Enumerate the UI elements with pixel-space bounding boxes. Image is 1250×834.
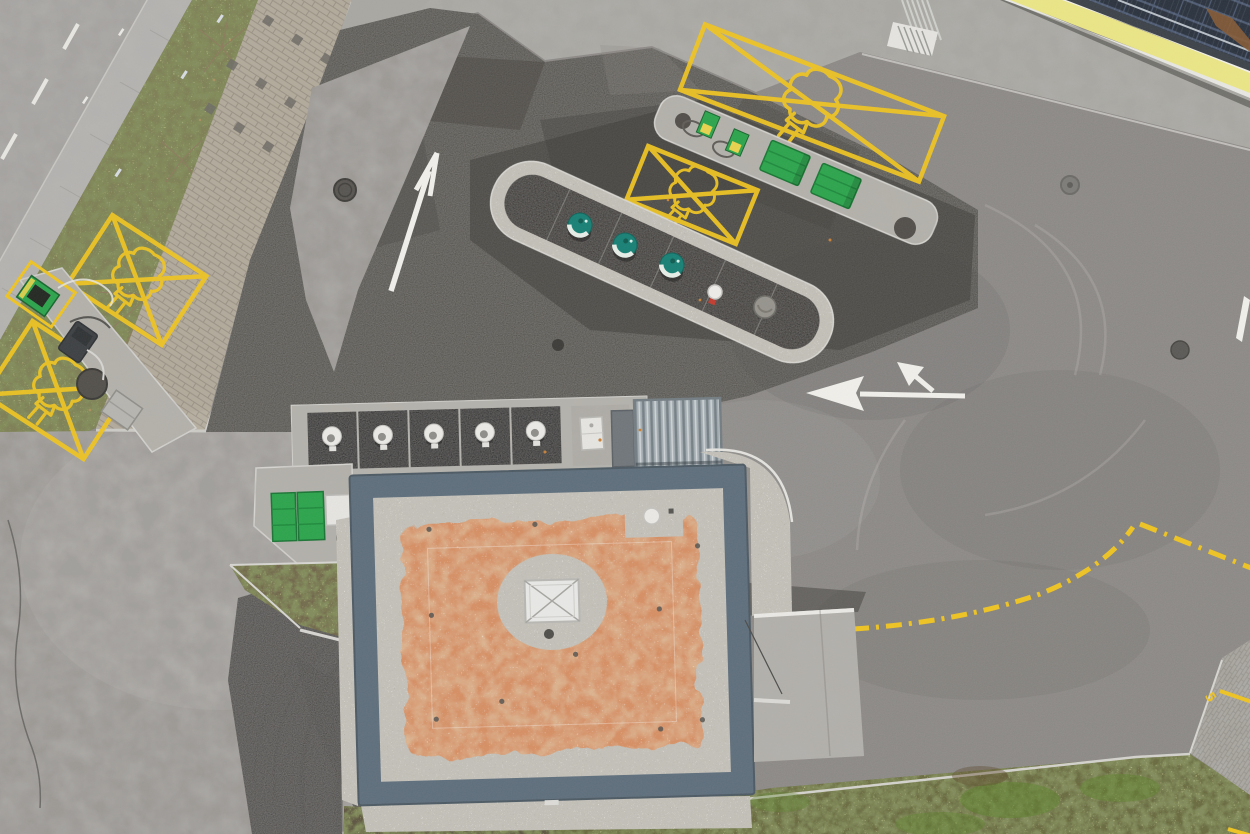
- aerial-photo-canvas: Aerial drone view of an EV fast-charging…: [0, 0, 1250, 834]
- island-cover: [894, 217, 916, 239]
- parapet-tick: [545, 800, 559, 805]
- service-row: [291, 394, 722, 477]
- green-cabinet: [297, 492, 325, 541]
- corrugated-shelter: [634, 398, 722, 468]
- side-ramp: [745, 608, 864, 762]
- ramp-slab: [754, 608, 864, 762]
- utility-cover: [754, 296, 776, 318]
- green-cabinet: [271, 493, 297, 542]
- roof-vent: [643, 508, 659, 524]
- white-cabinet: [580, 417, 604, 450]
- manhole-cover: [1171, 341, 1189, 359]
- manhole-cover: [1061, 176, 1079, 194]
- building: [349, 464, 754, 810]
- manhole-cover: [334, 179, 356, 201]
- aerial-photo: Aerial drone view of an EV fast-charging…: [0, 0, 1250, 834]
- ramp-white-strip: [754, 700, 790, 702]
- tyre-on-ground: [77, 369, 107, 399]
- roof-fitting: [669, 509, 674, 514]
- drain: [552, 339, 564, 351]
- dark-panel: [611, 410, 634, 467]
- skylight: [524, 579, 579, 622]
